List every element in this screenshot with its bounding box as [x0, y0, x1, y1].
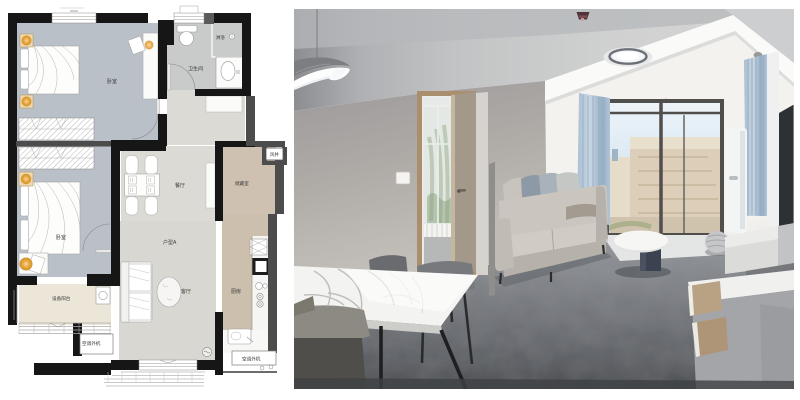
svg-text:餐厅: 餐厅	[175, 182, 185, 189]
svg-text:卧室: 卧室	[56, 234, 66, 241]
svg-text:设备阳台: 设备阳台	[52, 295, 71, 302]
svg-text:空调外机: 空调外机	[82, 340, 101, 347]
svg-text:淋浴: 淋浴	[216, 34, 225, 41]
svg-text:卫生间: 卫生间	[188, 66, 203, 73]
svg-text:储藏室: 储藏室	[235, 180, 249, 187]
svg-text:户型A: 户型A	[163, 239, 177, 246]
svg-text:空调外机: 空调外机	[242, 356, 261, 363]
svg-text:卧室: 卧室	[107, 78, 117, 85]
svg-text:厨房: 厨房	[231, 288, 241, 295]
svg-text:风井: 风井	[270, 151, 279, 158]
svg-text:客厅: 客厅	[181, 288, 191, 295]
